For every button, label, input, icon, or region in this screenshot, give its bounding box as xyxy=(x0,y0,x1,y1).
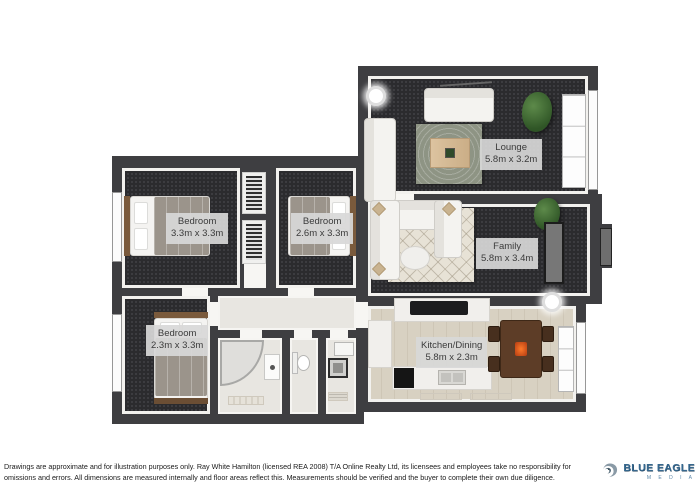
room-dims: 5.8m x 3.2m xyxy=(485,154,537,166)
room-name: Bedroom xyxy=(171,216,223,228)
bedroom2-door xyxy=(288,288,314,296)
wc-door xyxy=(294,330,312,338)
laundry-tub xyxy=(334,342,354,356)
family-bay-window xyxy=(600,228,612,266)
room-label-bedroom3: Bedroom 2.3m x 3.3m xyxy=(146,325,208,356)
bedroom3-door xyxy=(210,302,218,326)
bathroom-door xyxy=(240,330,262,338)
toilet-bowl xyxy=(297,355,310,371)
bath-mat xyxy=(228,396,264,405)
table-centerpiece xyxy=(515,342,527,356)
hallway-floor xyxy=(218,296,356,330)
disclaimer-line-2: omissions and errors. All dimensions are… xyxy=(4,472,614,483)
vanity-faucet xyxy=(270,365,275,370)
room-dims: 2.3m x 3.3m xyxy=(151,340,203,352)
room-label-family: Family 5.8m x 3.4m xyxy=(476,238,538,269)
room-name: Lounge xyxy=(485,142,537,154)
lounge-sofa-top xyxy=(424,88,494,122)
hanging-clothes xyxy=(246,224,262,260)
closet-nook-opening xyxy=(244,262,266,288)
laundry-door xyxy=(330,330,348,338)
toilet xyxy=(292,352,310,374)
hanging-clothes xyxy=(246,176,262,210)
dining-chair xyxy=(542,356,554,372)
disclaimer: Drawings are approximate and for illustr… xyxy=(4,461,614,483)
wardrobe-closet xyxy=(242,220,266,264)
bathroom-vanity xyxy=(264,354,280,380)
kitchen-counter-left xyxy=(368,320,392,368)
room-dims: 5.8m x 2.3m xyxy=(421,352,482,364)
kitchen-window-panes xyxy=(558,326,574,392)
blue-eagle-logo: BLUE EAGLE M E D I A xyxy=(600,461,695,481)
family-ottoman xyxy=(400,246,430,270)
kitchen-wall-light-icon xyxy=(542,292,562,312)
bed-pillow xyxy=(134,228,148,250)
kitchen-floor-mat xyxy=(470,393,512,400)
lounge-sofa-left xyxy=(364,118,396,202)
wc-floor xyxy=(290,338,318,414)
lounge-window xyxy=(588,90,598,190)
dining-chair xyxy=(542,326,554,342)
room-label-kitchen-dining: Kitchen/Dining 5.8m x 2.3m xyxy=(416,337,487,368)
floorplan-page: Lounge 5.8m x 3.2m Family 5.8m x 3.4m Be… xyxy=(0,0,700,500)
dining-chair xyxy=(488,326,500,342)
room-name: Bedroom xyxy=(296,216,348,228)
cooktop xyxy=(410,301,468,315)
room-label-bedroom2: Bedroom 2.6m x 3.3m xyxy=(291,213,353,244)
kitchen-floor-mat xyxy=(420,393,462,400)
lounge-wall-light-icon xyxy=(366,86,386,106)
bed-pillow xyxy=(134,202,148,224)
room-dims: 3.3m x 3.3m xyxy=(171,228,223,240)
logo-subtitle: M E D I A xyxy=(623,475,695,481)
bedroom1-window xyxy=(112,192,122,262)
room-name: Family xyxy=(481,241,533,253)
washer-lid xyxy=(333,363,343,373)
eagle-icon xyxy=(600,461,620,481)
room-name: Bedroom xyxy=(151,328,203,340)
wardrobe-closet xyxy=(242,172,266,214)
coffee-table-decor xyxy=(445,148,455,158)
dining-chair xyxy=(488,356,500,372)
bedroom3-window xyxy=(112,314,122,392)
sink-basin xyxy=(453,373,463,382)
room-label-bedroom1: Bedroom 3.3m x 3.3m xyxy=(166,213,228,244)
floor-vent xyxy=(328,392,348,401)
hall-kitchen-door xyxy=(356,302,368,328)
bed-footboard xyxy=(154,398,208,404)
disclaimer-line-1: Drawings are approximate and for illustr… xyxy=(4,461,614,472)
bedroom1-door xyxy=(182,288,208,296)
room-name: Kitchen/Dining xyxy=(421,340,482,352)
logo-title: BLUE EAGLE xyxy=(623,462,695,474)
kitchen-sink xyxy=(438,370,466,385)
washing-machine xyxy=(328,358,348,378)
kitchen-window xyxy=(576,322,586,394)
room-dims: 5.8m x 3.4m xyxy=(481,253,533,265)
floorplan-image: Lounge 5.8m x 3.2m Family 5.8m x 3.4m Be… xyxy=(0,0,700,455)
sink-basin xyxy=(441,373,451,382)
stove xyxy=(394,368,414,388)
room-dims: 2.6m x 3.3m xyxy=(296,228,348,240)
room-label-lounge: Lounge 5.8m x 3.2m xyxy=(480,139,542,170)
family-tv xyxy=(544,222,564,284)
lounge-window-panes xyxy=(562,94,586,188)
